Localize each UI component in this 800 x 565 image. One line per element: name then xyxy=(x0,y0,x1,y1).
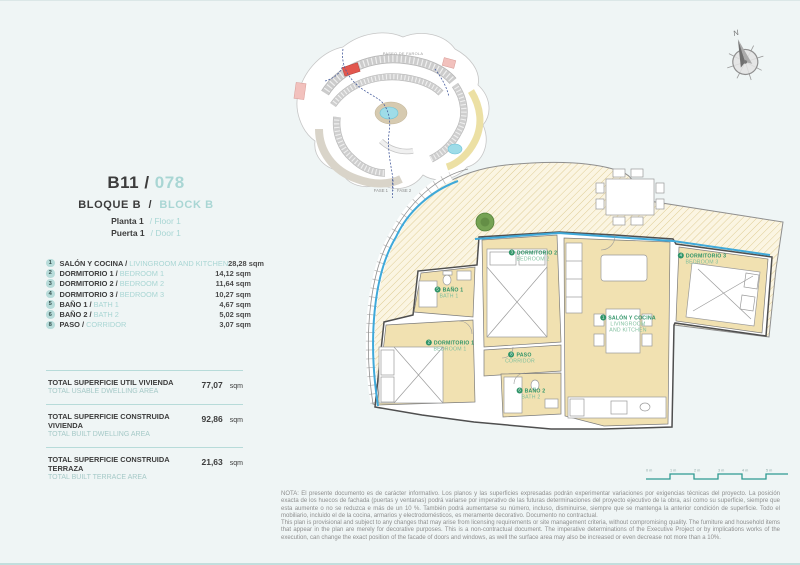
area-totals: TOTAL SUPERFICIE UTIL VIVIENDATOTAL USAB… xyxy=(46,370,243,490)
block-en: BLOCK B xyxy=(159,199,213,211)
plan-label-bath1: 5BAÑO 1 BATH 1 xyxy=(435,285,464,300)
room-name-en: LIVINGROOM AND KITCHEN xyxy=(129,259,228,268)
plan-room-name-en: BATH 1 xyxy=(435,294,464,300)
room-number-badge: 1 xyxy=(46,259,55,268)
total-unit: sqm xyxy=(230,460,243,467)
total-label-en: TOTAL USABLE DWELLING AREA xyxy=(48,387,174,396)
plan-room-number: 8 xyxy=(508,352,514,358)
legend-row: 3DORMITORIO 2 / BEDROOM 211,64 sqm xyxy=(46,279,251,289)
total-label-es: TOTAL SUPERFICIE CONSTRUIDA TERRAZA xyxy=(48,455,201,473)
room-name-es: DORMITORIO 1 / xyxy=(60,269,118,278)
north-label: N xyxy=(732,28,740,38)
room-name-en: BATH 1 xyxy=(94,300,119,309)
plan-label-bedroom1: 2DORMITORIO 1 BEDROOM 1 xyxy=(426,338,474,353)
map-pool-2 xyxy=(448,144,462,154)
room-area: 3,07 sqm xyxy=(219,320,251,329)
room-name-es: SALÓN Y COCINA / xyxy=(60,259,128,268)
plan-label-living-kitchen: 1SALÓN Y COCINA LIVINGROOM AND KITCHEN xyxy=(600,313,656,334)
compass-rose-icon: N xyxy=(712,25,778,91)
room-legend: 1SALÓN Y COCINA / LIVINGROOM AND KITCHEN… xyxy=(46,258,251,330)
room-name-en: BATH 2 xyxy=(94,310,119,319)
room-area: 28,28 sqm xyxy=(228,259,264,268)
room-name-en: BEDROOM 1 xyxy=(120,269,164,278)
plan-room-name-en: BEDROOM 2 xyxy=(509,257,557,263)
map-area-label: PASEO DE FAROLA xyxy=(383,51,424,56)
room-area: 10,27 sqm xyxy=(215,290,251,299)
plan-room-name-en: BEDROOM 3 xyxy=(678,260,726,266)
terrace-plant-inner xyxy=(481,218,490,227)
total-label-es: TOTAL SUPERFICIE UTIL VIVIENDA xyxy=(48,378,174,387)
total-value: 92,86 xyxy=(201,414,222,424)
block-sep: / xyxy=(148,199,152,211)
scale-label: 3 m xyxy=(718,469,724,473)
unit-number: B11 / xyxy=(107,173,149,192)
total-unit: sqm xyxy=(230,417,243,424)
scale-label: 0 m xyxy=(646,469,652,473)
total-usable-area: TOTAL SUPERFICIE UTIL VIVIENDATOTAL USAB… xyxy=(46,370,243,404)
plan-room-number: 2 xyxy=(426,340,432,346)
unit-code: 078 xyxy=(155,173,185,192)
scale-label: 2 m xyxy=(694,469,700,473)
note-spanish: NOTA: El presente documento es de caráct… xyxy=(281,491,780,520)
door-es: Puerta 1 xyxy=(111,227,145,239)
plan-label-corridor: 8PASO CORRIDOR xyxy=(505,350,535,365)
plan-room-number: 1 xyxy=(600,315,606,321)
room-name-en: BEDROOM 2 xyxy=(120,279,164,288)
map-pool xyxy=(380,107,398,119)
room-name-en: CORRIDOR xyxy=(86,320,126,329)
total-value: 77,07 xyxy=(201,380,222,390)
total-value: 21,63 xyxy=(201,457,222,467)
room-number-badge: 2 xyxy=(46,269,55,278)
room-area: 11,64 sqm xyxy=(216,279,251,288)
legend-row: 1SALÓN Y COCINA / LIVINGROOM AND KITCHEN… xyxy=(46,258,251,268)
legend-row: 6BAÑO 2 / BATH 25,02 sqm xyxy=(46,309,251,319)
room-number-badge: 3 xyxy=(46,279,55,288)
plan-room-number: 4 xyxy=(678,253,684,259)
plan-room-name-en: CORRIDOR xyxy=(505,359,535,365)
room-name-es: DORMITORIO 3 / xyxy=(60,290,118,299)
door-row: Puerta 1/ Door 1 xyxy=(40,227,252,239)
plan-room-number: 5 xyxy=(435,287,441,293)
unit-header: B11 / 078 BLOQUE B / BLOCK B Planta 1/ F… xyxy=(40,173,252,239)
legend-row: 2DORMITORIO 1 / BEDROOM 114,12 sqm xyxy=(46,268,251,278)
floorplan-sheet: PASEO DE FAROLA FASE 1 FASE 2 N B11 / 07… xyxy=(0,0,800,565)
room-area: 4,67 sqm xyxy=(219,300,251,309)
floor-es: Planta 1 xyxy=(111,215,144,227)
legend-row: 5BAÑO 1 / BATH 14,67 sqm xyxy=(46,299,251,309)
door-en: / Door 1 xyxy=(151,227,181,239)
room-name-en: BEDROOM 3 xyxy=(120,290,164,299)
total-label-es: TOTAL SUPERFICIE CONSTRUIDA VIVIENDA xyxy=(48,412,201,430)
room-name-es: BAÑO 2 / xyxy=(60,310,92,319)
room-name-es: BAÑO 1 / xyxy=(60,300,92,309)
unit-title: B11 / 078 xyxy=(40,173,252,193)
room-number-badge: 8 xyxy=(46,321,55,330)
plan-label-bedroom2: 3DORMITORIO 2 BEDROOM 2 xyxy=(509,248,557,263)
legend-row: 4DORMITORIO 3 / BEDROOM 310,27 sqm xyxy=(46,289,251,299)
plan-room-name-en: BATH 2 xyxy=(517,395,546,401)
total-built-terrace-area: TOTAL SUPERFICIE CONSTRUIDA TERRAZATOTAL… xyxy=(46,447,243,490)
floor-row: Planta 1/ Floor 1 xyxy=(40,215,252,227)
plan-label-bedroom3: 4DORMITORIO 3 BEDROOM 3 xyxy=(678,251,726,266)
scale-label: 1 m xyxy=(670,469,676,473)
scale-label: 5 m xyxy=(766,469,772,473)
plan-room-number: 6 xyxy=(517,388,523,394)
plan-room-name-en: BEDROOM 1 xyxy=(426,347,474,353)
room-name-es: PASO / xyxy=(60,320,85,329)
floor-plan: 1SALÓN Y COCINA LIVINGROOM AND KITCHEN 2… xyxy=(363,159,793,464)
map-pink-block-left xyxy=(294,82,306,99)
total-built-dwelling-area: TOTAL SUPERFICIE CONSTRUIDA VIVIENDATOTA… xyxy=(46,404,243,447)
room-number-badge: 4 xyxy=(46,290,55,299)
plan-label-bath2: 6BAÑO 2 BATH 2 xyxy=(517,386,546,401)
room-name-es: DORMITORIO 2 / xyxy=(60,279,118,288)
total-unit: sqm xyxy=(230,383,243,390)
total-label-en: TOTAL BUILT DWELLING AREA xyxy=(48,430,201,439)
legend-row: 8PASO / CORRIDOR3,07 sqm xyxy=(46,320,251,330)
room-area: 5,02 sqm xyxy=(219,310,251,319)
room-number-badge: 6 xyxy=(46,310,55,319)
block-es: BLOQUE B xyxy=(78,199,141,211)
room-area: 14,12 sqm xyxy=(215,269,251,278)
floor-en: / Floor 1 xyxy=(150,215,181,227)
total-label-en: TOTAL BUILT TERRACE AREA xyxy=(48,473,201,482)
block-title: BLOQUE B / BLOCK B xyxy=(40,199,252,211)
scale-bar: 0 m 1 m 2 m 3 m 4 m 5 m xyxy=(644,466,790,484)
plan-room-name-en: LIVINGROOM AND KITCHEN xyxy=(605,322,651,334)
floor-plan-drawing xyxy=(363,159,793,464)
disclaimer-note: NOTA: El presente documento es de caráct… xyxy=(281,491,780,542)
scale-label: 4 m xyxy=(742,469,748,473)
room-number-badge: 5 xyxy=(46,300,55,309)
note-english: This plan is provisional and subject to … xyxy=(281,520,780,542)
plan-room-number: 3 xyxy=(509,250,515,256)
